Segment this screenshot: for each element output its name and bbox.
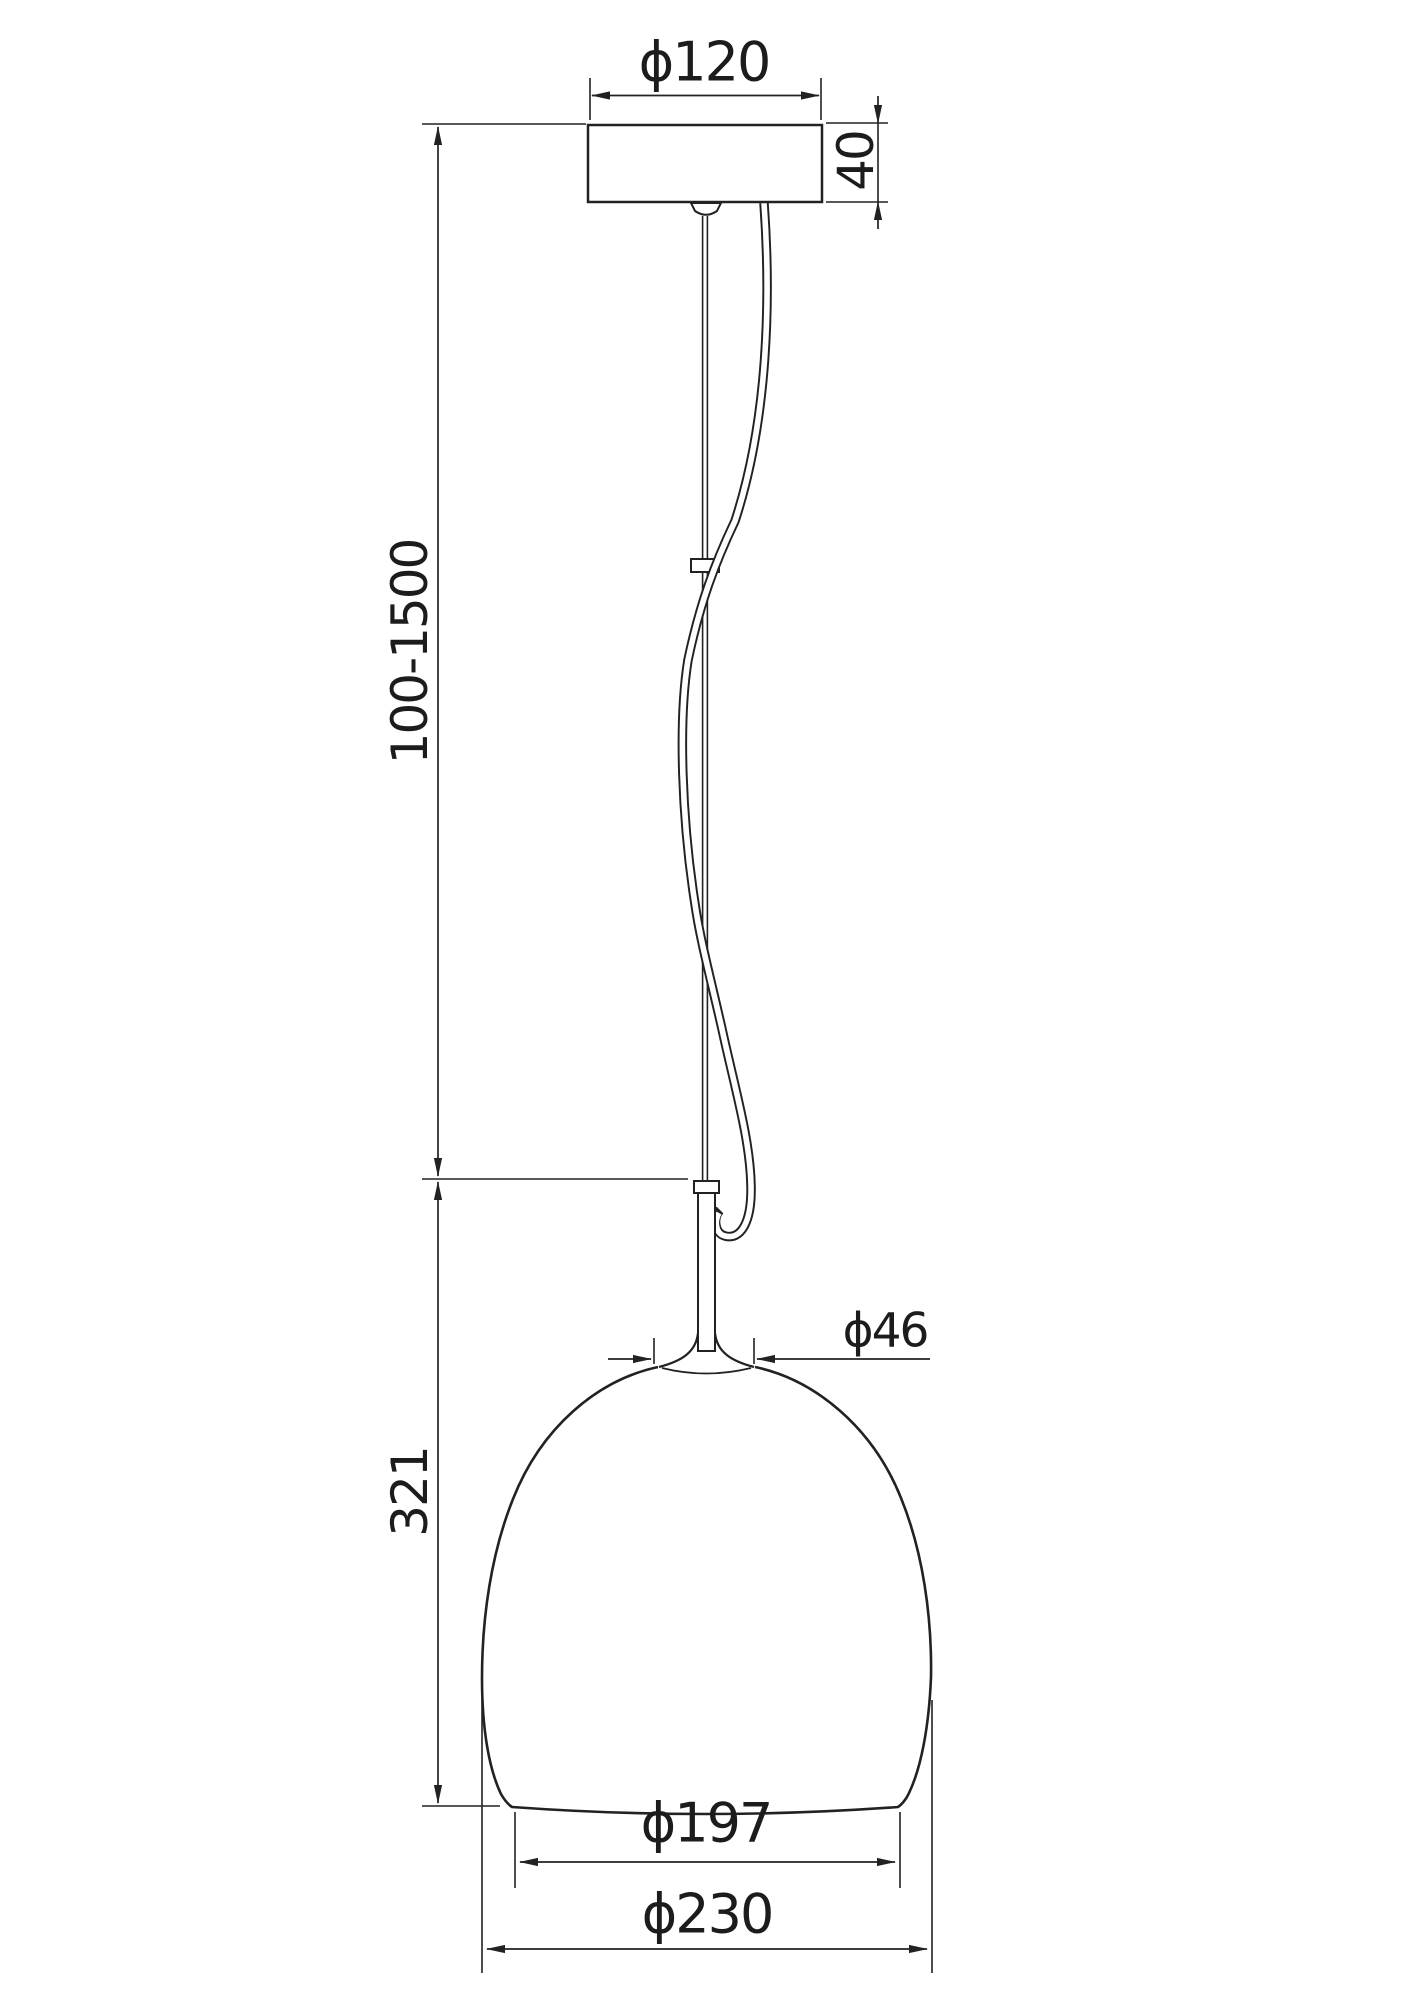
ceiling-canopy (588, 125, 822, 215)
power-cord (682, 203, 767, 1237)
glass-shade (482, 1367, 931, 1814)
lamp-holder (659, 1181, 754, 1374)
canopy-cable-gland (691, 203, 721, 215)
label-canopy-height: 40 (827, 131, 885, 191)
label-canopy-diameter: ϕ120 (639, 31, 770, 94)
dimension-suspension-length (422, 124, 688, 1179)
label-shade-diameter: ϕ230 (642, 1883, 773, 1946)
technical-drawing-canvas: ϕ120 40 100-1500 ϕ46 321 ϕ197 ϕ230 (0, 0, 1413, 2000)
neck-rim (662, 1368, 751, 1374)
label-neck-diameter: ϕ46 (843, 1304, 928, 1359)
label-suspension-length: 100-1500 (381, 540, 439, 765)
suspension-cable (703, 216, 708, 1181)
pendant-lamp-line-drawing (0, 0, 1413, 2000)
label-shade-opening-diameter: ϕ197 (641, 1792, 772, 1855)
label-shade-height: 321 (381, 1447, 439, 1536)
